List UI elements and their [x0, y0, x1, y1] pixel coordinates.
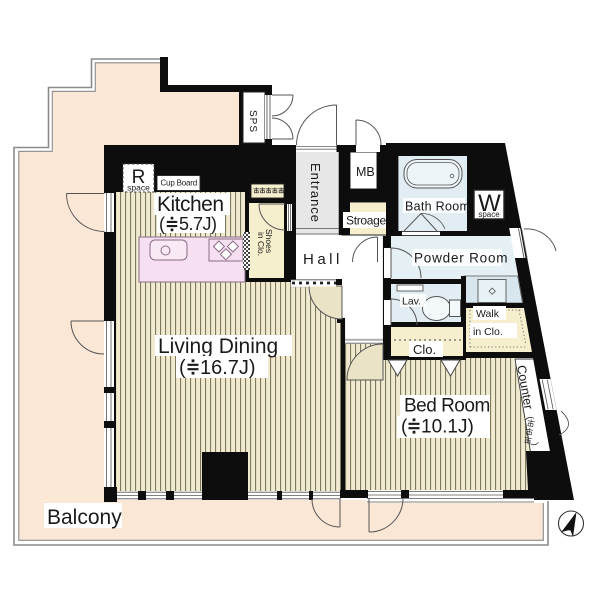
- svg-text:Balcony: Balcony: [47, 506, 122, 529]
- svg-text:10.1J): 10.1J): [421, 417, 474, 438]
- svg-text:space: space: [127, 183, 150, 193]
- svg-text:(: (: [179, 357, 186, 379]
- svg-text:Walk: Walk: [476, 308, 500, 320]
- svg-text:Bath Room: Bath Room: [405, 200, 470, 214]
- svg-text:Kitchen: Kitchen: [157, 193, 224, 216]
- svg-text:space: space: [478, 210, 500, 219]
- svg-text:Living Dining: Living Dining: [158, 335, 278, 358]
- svg-text:in Clo.: in Clo.: [473, 326, 503, 338]
- svg-text:Entrance: Entrance: [308, 163, 323, 223]
- svg-text:SPS: SPS: [247, 110, 258, 133]
- svg-text:5.7J): 5.7J): [179, 214, 217, 234]
- svg-text:16.7J): 16.7J): [200, 357, 256, 379]
- svg-text:Bed Room: Bed Room: [404, 396, 490, 417]
- svg-text:Cup Board: Cup Board: [161, 179, 197, 188]
- svg-text:Powder Room: Powder Room: [414, 251, 508, 266]
- svg-text:Hall: Hall: [303, 251, 343, 268]
- svg-text:(: (: [401, 417, 408, 438]
- svg-text:Lav.: Lav.: [402, 296, 421, 308]
- svg-text:(: (: [159, 214, 165, 234]
- svg-text:Clo.: Clo.: [413, 342, 436, 357]
- svg-text:Stroage: Stroage: [346, 214, 387, 228]
- svg-text:MB: MB: [356, 165, 375, 179]
- svg-text:in Clo.: in Clo.: [256, 232, 266, 256]
